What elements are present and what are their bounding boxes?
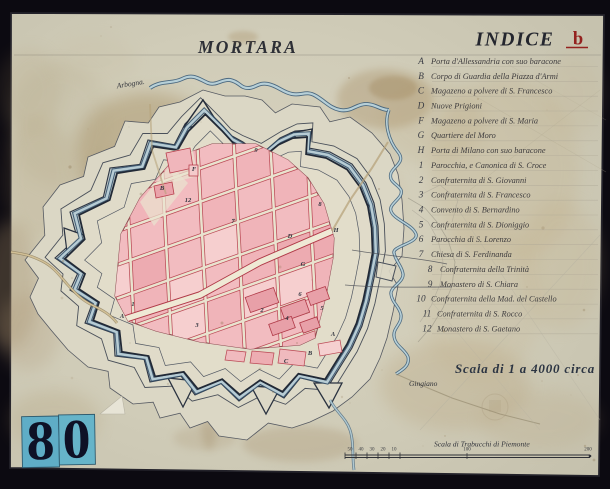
svg-text:30: 30 xyxy=(370,448,376,453)
svg-text:Porta di Milano con suo baraco: Porta di Milano con suo baracone xyxy=(430,146,546,155)
svg-text:D: D xyxy=(287,233,293,240)
svg-text:B: B xyxy=(307,350,313,357)
svg-text:Corpo di Guardia della Piazza: Corpo di Guardia della Piazza d'Armi xyxy=(431,72,559,81)
svg-text:10: 10 xyxy=(392,448,398,453)
svg-text:INDICE: INDICE xyxy=(475,30,555,51)
svg-text:A: A xyxy=(417,56,424,66)
svg-text:1: 1 xyxy=(131,301,134,308)
svg-text:B: B xyxy=(418,71,424,81)
svg-text:H: H xyxy=(332,227,339,234)
svg-text:200: 200 xyxy=(584,448,592,453)
svg-text:Nuove Prigioni: Nuove Prigioni xyxy=(430,102,483,111)
svg-text:A: A xyxy=(119,313,125,320)
svg-text:1: 1 xyxy=(419,160,424,170)
svg-text:Monastero di S. Gaetano: Monastero di S. Gaetano xyxy=(436,324,520,333)
svg-text:2: 2 xyxy=(419,175,424,185)
svg-text:b: b xyxy=(573,30,583,50)
svg-text:F: F xyxy=(192,166,197,173)
svg-text:6: 6 xyxy=(419,234,424,244)
svg-text:Convento di S. Bernardino: Convento di S. Bernardino xyxy=(431,206,520,215)
svg-text:4: 4 xyxy=(419,205,424,215)
svg-text:A: A xyxy=(330,331,336,338)
svg-text:11: 11 xyxy=(423,308,432,318)
svg-text:Parocchia, e Canonica di S. Cr: Parocchia, e Canonica di S. Croce xyxy=(430,161,547,170)
svg-text:7: 7 xyxy=(419,249,424,259)
svg-text:Confraternita di S. Francesco: Confraternita di S. Francesco xyxy=(431,191,531,200)
svg-text:Confraternita di S. Dioniggio: Confraternita di S. Dioniggio xyxy=(431,220,529,229)
svg-text:G: G xyxy=(301,261,306,268)
svg-text:Magazeno a polvere di S. Maria: Magazeno a polvere di S. Maria xyxy=(430,116,538,125)
svg-text:C: C xyxy=(284,358,289,365)
svg-text:Gingiano: Gingiano xyxy=(409,379,438,388)
svg-text:0: 0 xyxy=(62,408,91,470)
svg-text:F: F xyxy=(417,115,424,125)
svg-text:12: 12 xyxy=(185,197,192,204)
svg-text:5: 5 xyxy=(419,219,424,229)
svg-text:40: 40 xyxy=(359,448,365,453)
svg-text:G: G xyxy=(418,130,425,140)
svg-text:C: C xyxy=(418,86,425,96)
svg-text:Confraternita di S. Giovanni: Confraternita di S. Giovanni xyxy=(431,176,527,185)
svg-text:Chiesa di S. Ferdinanda: Chiesa di S. Ferdinanda xyxy=(431,250,512,259)
svg-text:Magazeno a polvere di S. Franc: Magazeno a polvere di S. Francesco xyxy=(430,87,552,96)
svg-text:20: 20 xyxy=(381,448,387,453)
svg-text:Quartiere del Moro: Quartiere del Moro xyxy=(431,131,496,140)
svg-text:8: 8 xyxy=(26,410,55,472)
svg-text:Confraternita della Trinità: Confraternita della Trinità xyxy=(440,265,529,274)
svg-text:Confraternita di S. Rocco: Confraternita di S. Rocco xyxy=(437,309,522,318)
svg-text:Porta d'Allessandria con suo b: Porta d'Allessandria con suo baracone xyxy=(430,57,561,66)
svg-text:8: 8 xyxy=(428,264,433,274)
svg-text:9: 9 xyxy=(428,279,433,289)
svg-text:50: 50 xyxy=(348,448,354,453)
svg-text:3: 3 xyxy=(418,190,424,200)
svg-text:Scala di 1 a 4000 circa: Scala di 1 a 4000 circa xyxy=(455,361,595,376)
svg-text:Parocchia di S. Lorenzo: Parocchia di S. Lorenzo xyxy=(430,235,511,244)
svg-text:B: B xyxy=(159,185,165,192)
svg-text:Scala di Trabucchi di Piemonte: Scala di Trabucchi di Piemonte xyxy=(434,440,530,449)
svg-text:10: 10 xyxy=(416,294,426,304)
svg-text:12: 12 xyxy=(422,323,432,333)
svg-text:D: D xyxy=(417,101,425,111)
